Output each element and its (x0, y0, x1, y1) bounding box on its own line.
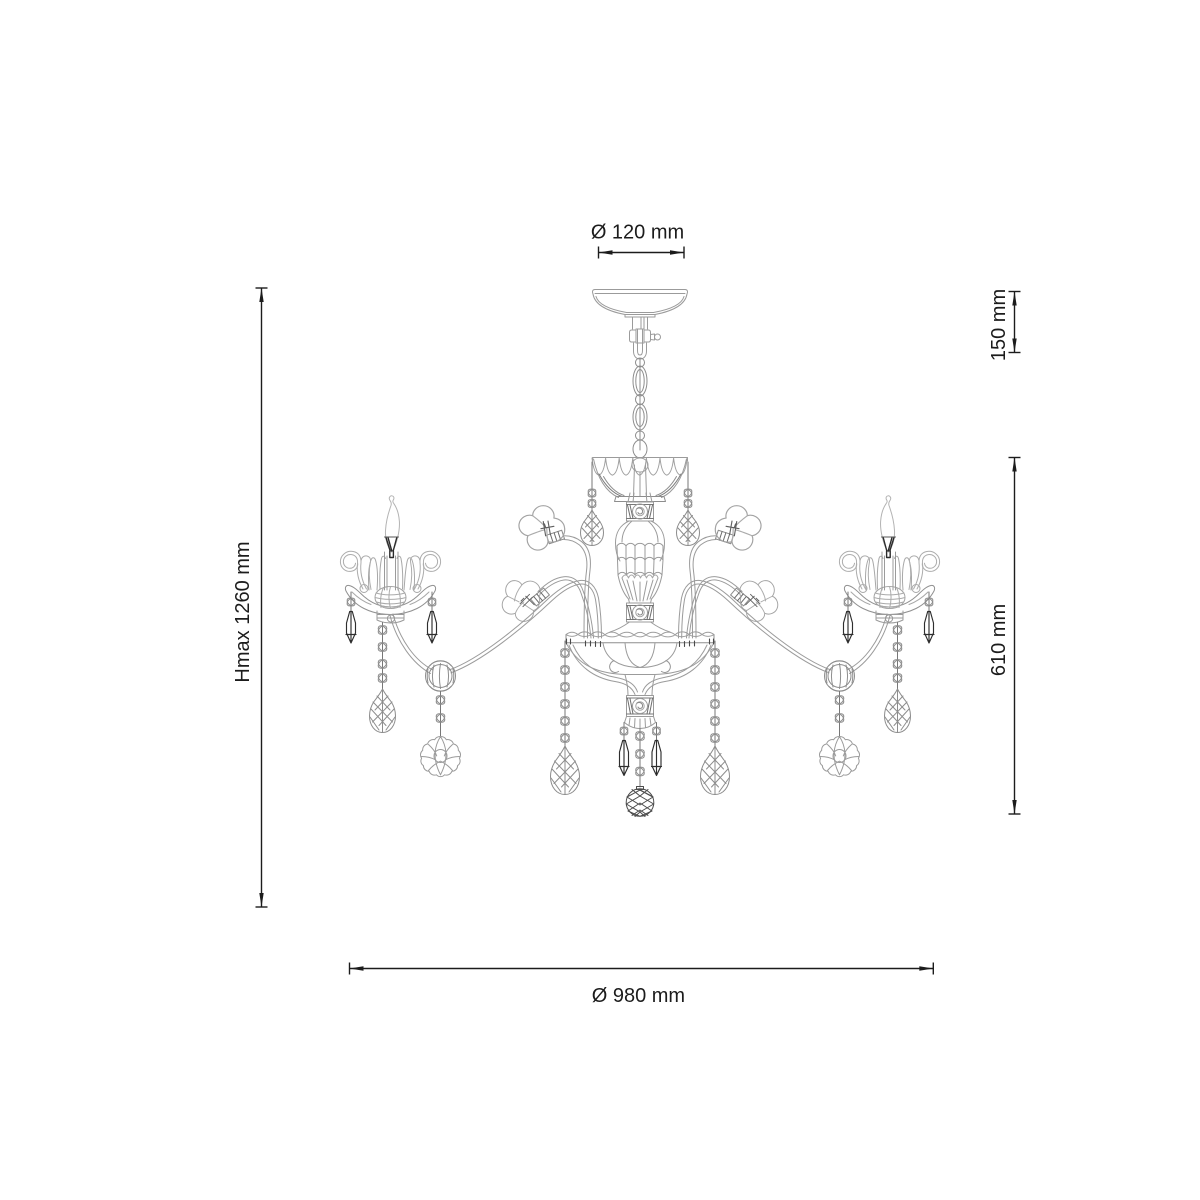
svg-text:610 mm: 610 mm (988, 604, 1010, 676)
svg-text:Hmax 1260 mm: Hmax 1260 mm (232, 541, 254, 682)
svg-text:150 mm: 150 mm (988, 289, 1010, 361)
svg-text:Ø 980 mm: Ø 980 mm (592, 985, 685, 1007)
svg-text:Ø 120 mm: Ø 120 mm (591, 222, 684, 244)
